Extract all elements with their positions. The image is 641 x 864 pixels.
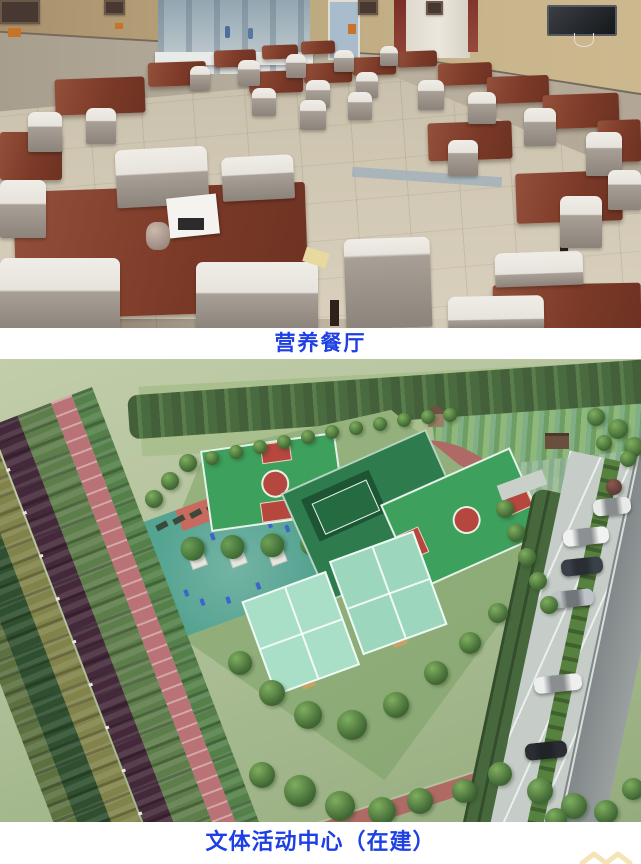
dining-chair: [494, 250, 583, 287]
tree: [337, 710, 367, 740]
figure-dining-hall: 营养餐厅: [0, 0, 641, 359]
tree: [325, 791, 355, 821]
tree: [496, 500, 514, 518]
tree: [294, 701, 322, 729]
lounger: [155, 520, 168, 531]
fitness-equipment: [225, 596, 231, 604]
dining-chair: [334, 50, 354, 72]
dining-chair: [196, 262, 318, 328]
tree: [253, 440, 267, 454]
dining-chair: [221, 154, 295, 202]
condiment-jar: [146, 222, 170, 250]
wall-sign: [348, 24, 356, 34]
dining-chair: [468, 92, 496, 124]
sports-center-caption: 文体活动中心（在建）: [0, 822, 641, 864]
tree: [228, 651, 252, 675]
tree: [368, 797, 396, 822]
tree: [407, 788, 433, 814]
dining-chair: [418, 80, 444, 110]
dining-chair: [348, 92, 372, 120]
tree: [608, 419, 628, 439]
tree: [229, 445, 243, 459]
tree: [540, 596, 558, 614]
dining-chair: [448, 140, 478, 176]
tissue-box-print: [178, 218, 204, 230]
dining-table: [397, 50, 438, 67]
dining-chair: [524, 108, 556, 146]
tree: [620, 451, 636, 467]
tree: [622, 778, 641, 800]
tree: [459, 632, 481, 654]
dining-chair: [343, 237, 432, 328]
tree: [518, 548, 536, 566]
dining-chair: [238, 60, 260, 86]
article-page: 营养餐厅: [0, 0, 641, 864]
tree: [529, 572, 547, 590]
dining-chair: [86, 108, 116, 144]
fitness-equipment: [199, 598, 205, 606]
kitchen-person: [248, 28, 253, 39]
dining-chair: [448, 295, 545, 328]
dining-chair: [28, 112, 62, 152]
tree: [397, 413, 411, 427]
tree: [145, 490, 163, 508]
dining-table: [438, 62, 493, 86]
tree: [606, 479, 622, 495]
watermark-zigzag-icon: [579, 850, 639, 864]
dining-chair: [252, 88, 276, 116]
figure-sports-center: 文体活动中心（在建）: [0, 359, 641, 864]
tree: [488, 762, 512, 786]
dining-chair: [190, 66, 210, 90]
tree: [507, 524, 525, 542]
fitness-equipment: [210, 533, 216, 541]
tree: [452, 779, 476, 803]
fitness-equipment: [284, 525, 290, 533]
fitness-equipment: [183, 589, 189, 597]
tree: [284, 775, 316, 807]
dining-chair: [286, 54, 306, 78]
tree: [424, 661, 448, 685]
sports-center-photo: [0, 359, 641, 822]
tree: [249, 762, 275, 788]
tree: [349, 421, 363, 435]
kitchen-person: [225, 26, 230, 38]
tree: [259, 680, 285, 706]
tree: [205, 451, 219, 465]
dining-chair: [300, 100, 326, 130]
tree: [527, 778, 553, 804]
tree: [421, 410, 435, 424]
tree: [373, 417, 387, 431]
tree: [179, 454, 197, 472]
tree: [301, 430, 315, 444]
wall-sign: [8, 28, 21, 37]
dining-hall-caption: 营养餐厅: [0, 328, 641, 359]
tree: [587, 408, 605, 426]
wall-picture-frame: [358, 0, 378, 15]
shed: [545, 433, 569, 449]
dining-hall-photo: [0, 0, 641, 328]
tree: [488, 603, 508, 623]
tree: [596, 435, 612, 451]
tv-cable: [574, 33, 594, 47]
tv-screen: [547, 5, 617, 36]
wall-picture-frame: [426, 1, 443, 15]
tree: [277, 435, 291, 449]
wall-picture-frame: [0, 0, 40, 24]
tree: [443, 408, 457, 422]
tree: [325, 425, 339, 439]
tree: [161, 472, 179, 490]
door-pillar: [468, 0, 478, 52]
dining-table: [301, 40, 335, 54]
dining-chair: [0, 180, 46, 238]
wall-picture-frame: [104, 0, 125, 15]
tissue-box: [166, 193, 220, 238]
dining-chair: [0, 258, 120, 328]
tree: [594, 800, 618, 822]
tree: [383, 692, 409, 718]
dining-chair: [560, 196, 602, 248]
dining-chair: [608, 170, 641, 210]
wall-sign: [115, 23, 123, 29]
dining-chair: [380, 46, 398, 66]
